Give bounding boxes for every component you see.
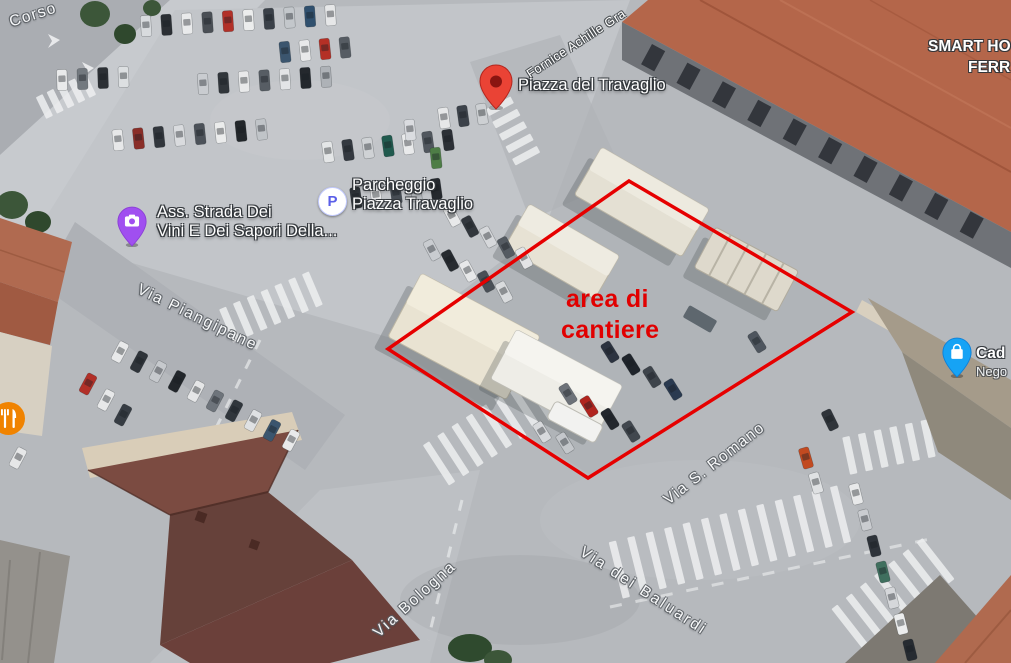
fork-knife-icon [0, 401, 26, 436]
poi-label-smart-hotel-line2[interactable]: FERR [968, 59, 1010, 77]
construction-area-label-line1: area di [566, 284, 659, 315]
parcheggio-line2: Piazza Travaglio [352, 195, 473, 214]
restaurant-icon[interactable] [0, 401, 26, 441]
poi-label-shop-line2[interactable]: Nego [976, 365, 1007, 380]
ass-strada-line2: Vini E Dei Sapori Della... [157, 222, 337, 241]
poi-label-ass-strada[interactable]: Ass. Strada Dei Vini E Dei Sapori Della.… [157, 203, 337, 241]
ass-strada-line1: Ass. Strada Dei [157, 203, 272, 221]
pin-piazza-del-travaglio[interactable] [479, 64, 513, 115]
poi-label-parcheggio[interactable]: Parcheggio Piazza Travaglio [352, 176, 473, 214]
parcheggio-line1: Parcheggio [352, 176, 435, 194]
construction-area-label-line2: cantiere [561, 315, 659, 346]
pin-ass-strada-dei-vini[interactable] [117, 206, 147, 252]
red-map-pin-icon [479, 64, 513, 110]
poi-label-piazza-del-travaglio[interactable]: Piazza del Travaglio [518, 76, 666, 95]
map-canvas[interactable]: Corso Fornice Achille Gra SMART HO FERR … [0, 0, 1011, 663]
poi-label-smart-hotel-line1[interactable]: SMART HO [928, 38, 1011, 56]
camera-attraction-pin-icon [117, 206, 147, 247]
poi-label-shop-line1[interactable]: Cad [976, 345, 1005, 363]
construction-area-label: area di cantiere [566, 284, 659, 346]
shopping-bag-pin-icon [942, 337, 972, 378]
pin-shop[interactable] [942, 337, 972, 383]
